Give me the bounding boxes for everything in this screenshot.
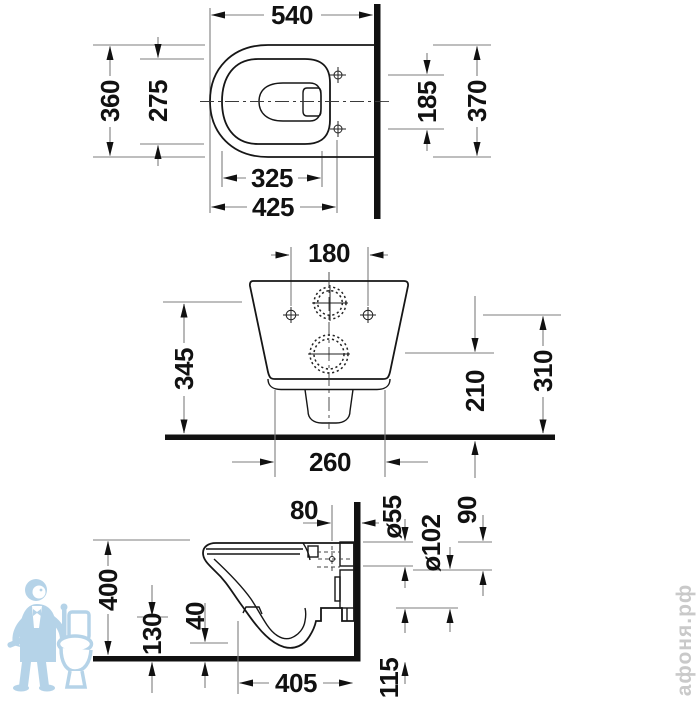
dim-rim-inner-length: 325 (251, 163, 293, 193)
plumber-mascot-watermark (7, 579, 92, 692)
wall-section-plan (374, 4, 381, 219)
flush-spud-outline (303, 88, 321, 116)
dim-holes-spacing-plan: 185 (412, 81, 442, 123)
dim-depth-from-wall: 405 (275, 668, 317, 698)
outlet-pipe-side (340, 570, 354, 608)
plan-dimensions: 540 360 275 185 370 325 425 (95, 0, 492, 222)
floor-section-side (93, 656, 361, 662)
technical-drawing-page: 540 360 275 185 370 325 425 (0, 0, 700, 700)
watermark-site-text: афоня.рф (673, 584, 696, 697)
dim-body-depth: 370 (462, 80, 492, 122)
dim-underside-height: 130 (137, 613, 167, 655)
rear-dimensions: 180 345 210 310 260 (169, 238, 558, 478)
floor-section-rear (165, 435, 555, 441)
dim-pipe-spacing: 90 (452, 496, 482, 524)
toilet-side-outline (203, 542, 354, 648)
side-dimensions: 80 ø55 ø102 90 115 400 130 40 405 (93, 495, 483, 698)
dim-holes-spacing-rear: 180 (308, 238, 350, 268)
toilet-rear-outline (250, 272, 408, 429)
dim-body-height: 345 (169, 348, 199, 390)
toilet-dimension-drawing: 540 360 275 185 370 325 425 (0, 0, 700, 700)
fixing-hole-marks-plan (330, 67, 346, 137)
dim-outlet-bottom-height: 115 (374, 658, 404, 698)
plumber-with-toilet-icon (7, 579, 92, 692)
flush-pipe-side (340, 542, 354, 566)
wall-section-side (354, 502, 361, 661)
dim-flush-inlet-depth: 80 (290, 495, 318, 525)
outlet-flange (335, 577, 340, 601)
rear-view: 180 345 210 310 260 (163, 238, 561, 478)
seat-profile-lines (206, 543, 318, 560)
dim-body-bottom-width: 260 (309, 447, 351, 477)
dim-overall-width: 540 (271, 0, 313, 30)
dim-front-to-holes: 425 (252, 192, 294, 222)
dim-front-underside-height: 40 (180, 602, 210, 630)
dim-outlet-center-height: 210 (460, 370, 490, 412)
plan-view: 540 360 275 185 370 325 425 (93, 0, 492, 222)
dim-holes-height: 310 (528, 350, 558, 392)
dim-overall-depth: 360 (95, 80, 125, 122)
side-view: 80 ø55 ø102 90 115 400 130 40 405 (93, 495, 492, 698)
bowl-inner-profile (214, 559, 306, 639)
dim-top-height: 400 (93, 569, 123, 611)
toilet-plan-outline (200, 45, 393, 157)
dim-rim-inner-depth: 275 (143, 80, 173, 122)
dim-outlet-pipe-diameter: ø102 (416, 514, 446, 571)
dim-flush-pipe-diameter: ø55 (377, 495, 407, 538)
